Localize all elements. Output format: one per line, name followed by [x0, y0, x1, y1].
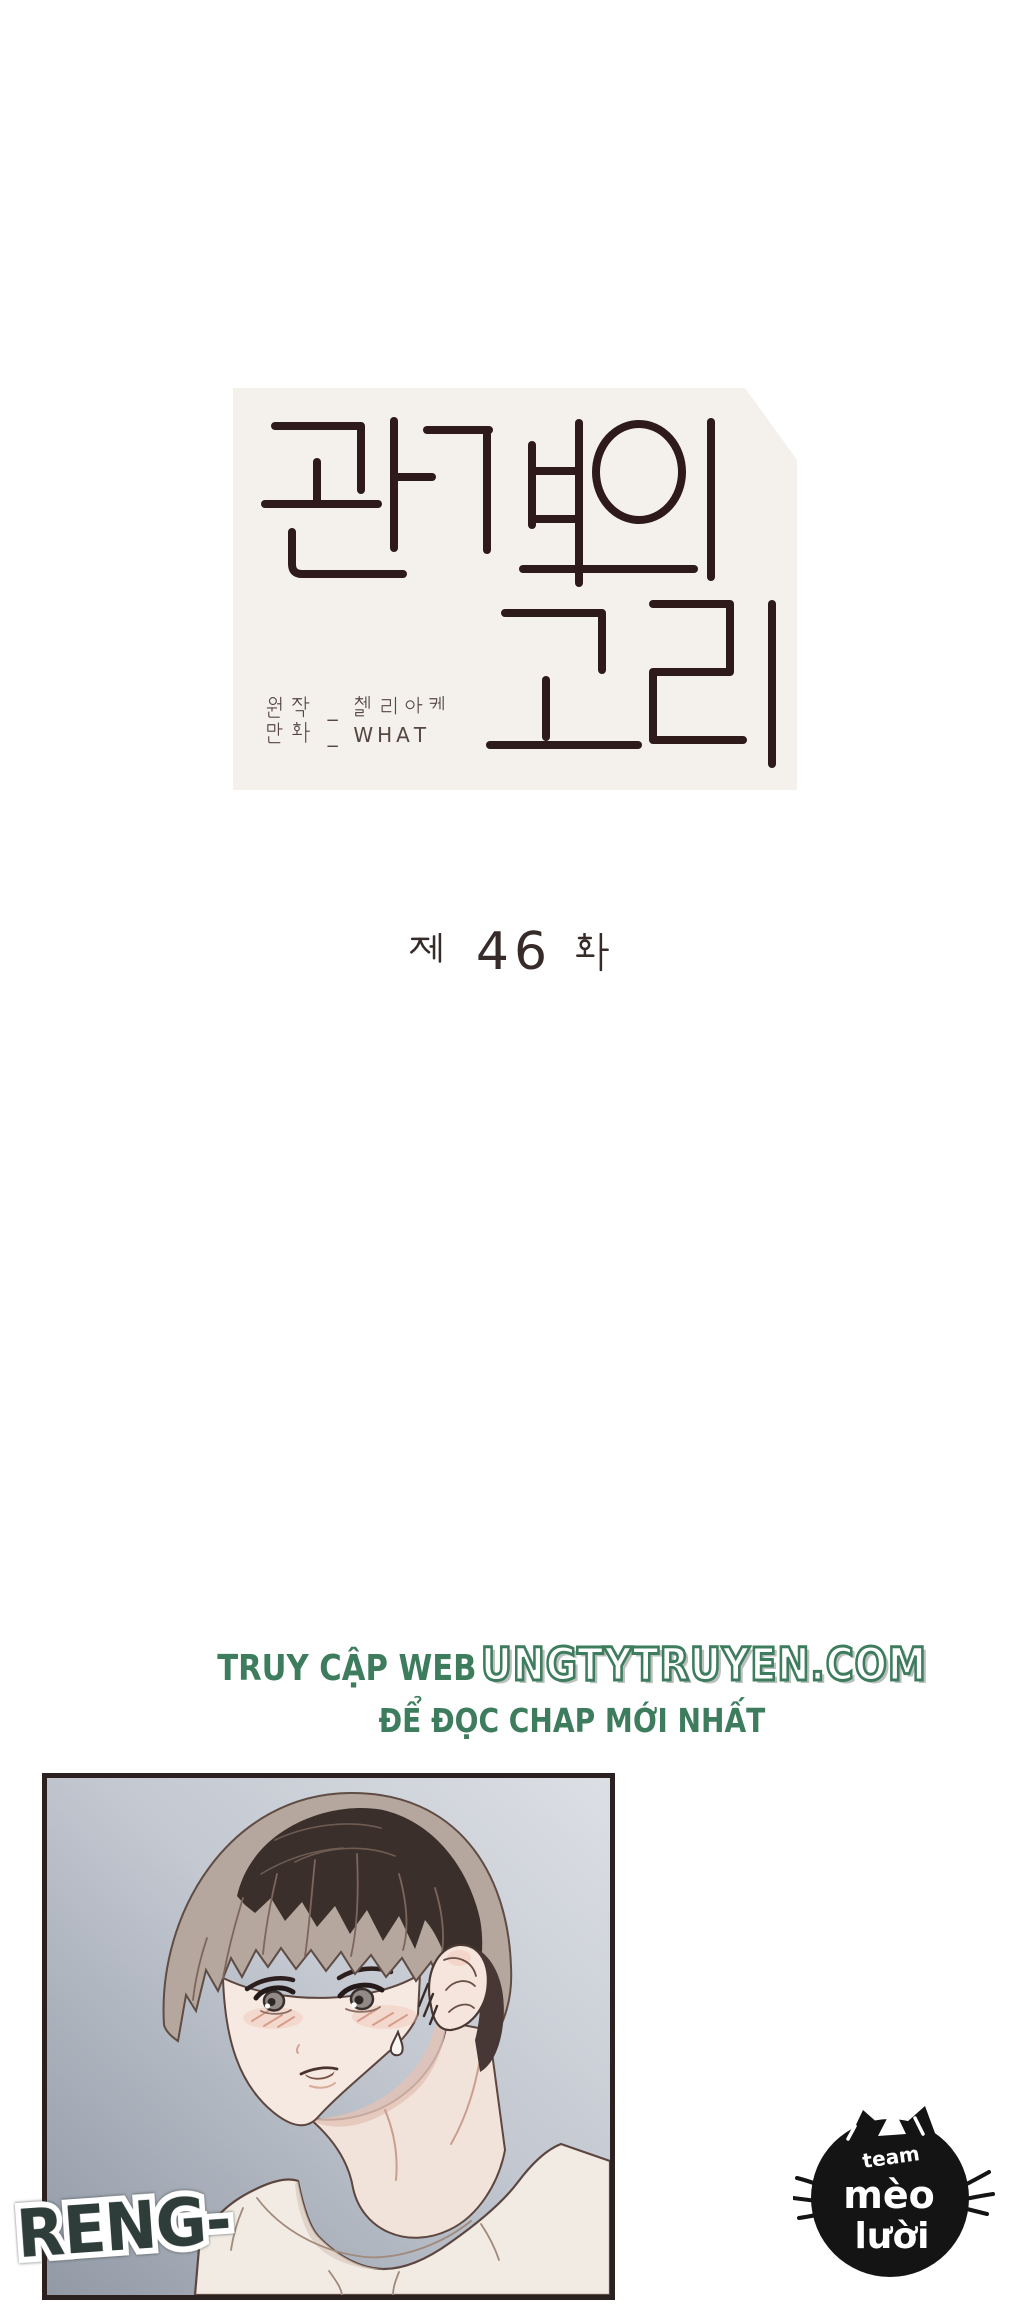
text-char: H	[377, 723, 394, 747]
hangul-glyph	[266, 696, 289, 719]
chapter-text: 46	[408, 924, 615, 984]
title-card: _ _WHAT	[233, 388, 797, 790]
text-char: W	[353, 723, 375, 747]
logo-luoi-text: lười	[854, 2216, 929, 2257]
comic-page: { "page": {"background": "#ffffff", "wid…	[0, 0, 1024, 2300]
sfx-reng: RENG-	[14, 2176, 303, 2305]
title-stroke	[505, 613, 602, 670]
text-char: A	[396, 723, 412, 747]
text-char: 4	[476, 922, 510, 982]
chapter-heading: 46	[0, 924, 1024, 984]
promo-banner: TRUY CẬP WEB UNGTYTRUYEN.COM ĐỂ ĐỌC CHAP…	[120, 1640, 1024, 1740]
team-logo: team mèo lười	[793, 2106, 995, 2288]
hangul-glyph	[574, 933, 616, 975]
promo-line-1: TRUY CẬP WEB UNGTYTRUYEN.COM	[188, 1640, 956, 1700]
hangul-glyph	[378, 696, 401, 719]
hangul-glyph	[408, 933, 450, 975]
promo-text: TRUY CẬP WEB	[217, 1648, 476, 1689]
sfx-text: RENG-	[14, 2181, 233, 2273]
text-char: 6	[514, 922, 548, 982]
credits-line-original: _	[266, 694, 451, 720]
hangul-glyph	[291, 722, 314, 745]
title-stroke	[596, 424, 682, 520]
text-char: _	[328, 723, 340, 747]
credits-line-artist: _WHAT	[266, 720, 451, 746]
title-stroke	[653, 604, 743, 740]
promo-line-2: ĐỂ ĐỌC CHAP MỚI NHẤT	[188, 1702, 956, 1740]
hangul-glyph	[428, 696, 451, 719]
credits: _ _WHAT	[266, 694, 451, 746]
logo-meo-text: mèo	[843, 2173, 934, 2217]
title-stroke	[292, 532, 403, 574]
hangul-glyph	[291, 696, 314, 719]
text-char: T	[414, 723, 428, 747]
hangul-glyph	[353, 696, 376, 719]
hangul-glyph	[266, 722, 289, 745]
hangul-glyph	[403, 696, 426, 719]
text-char: _	[328, 697, 340, 721]
promo-site-name: UNGTYTRUYEN.COM	[481, 1638, 927, 1691]
